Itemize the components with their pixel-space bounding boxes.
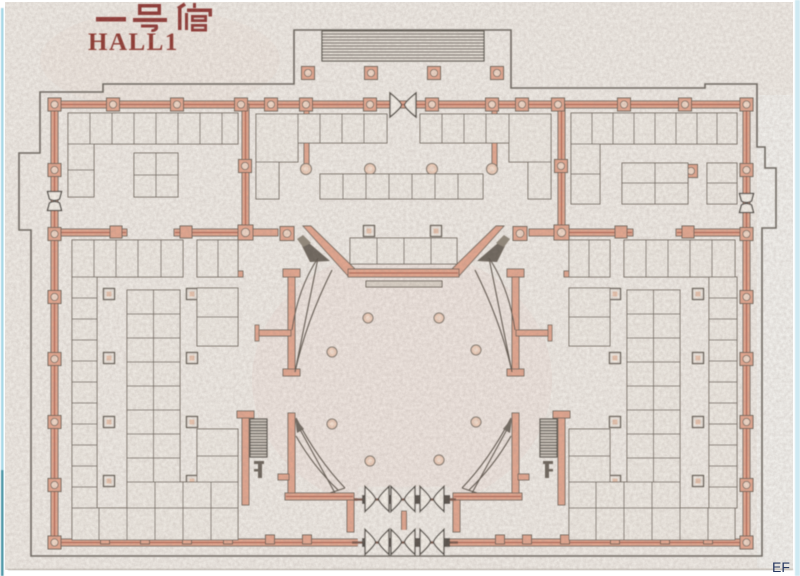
svg-text:EF: EF	[772, 559, 790, 575]
